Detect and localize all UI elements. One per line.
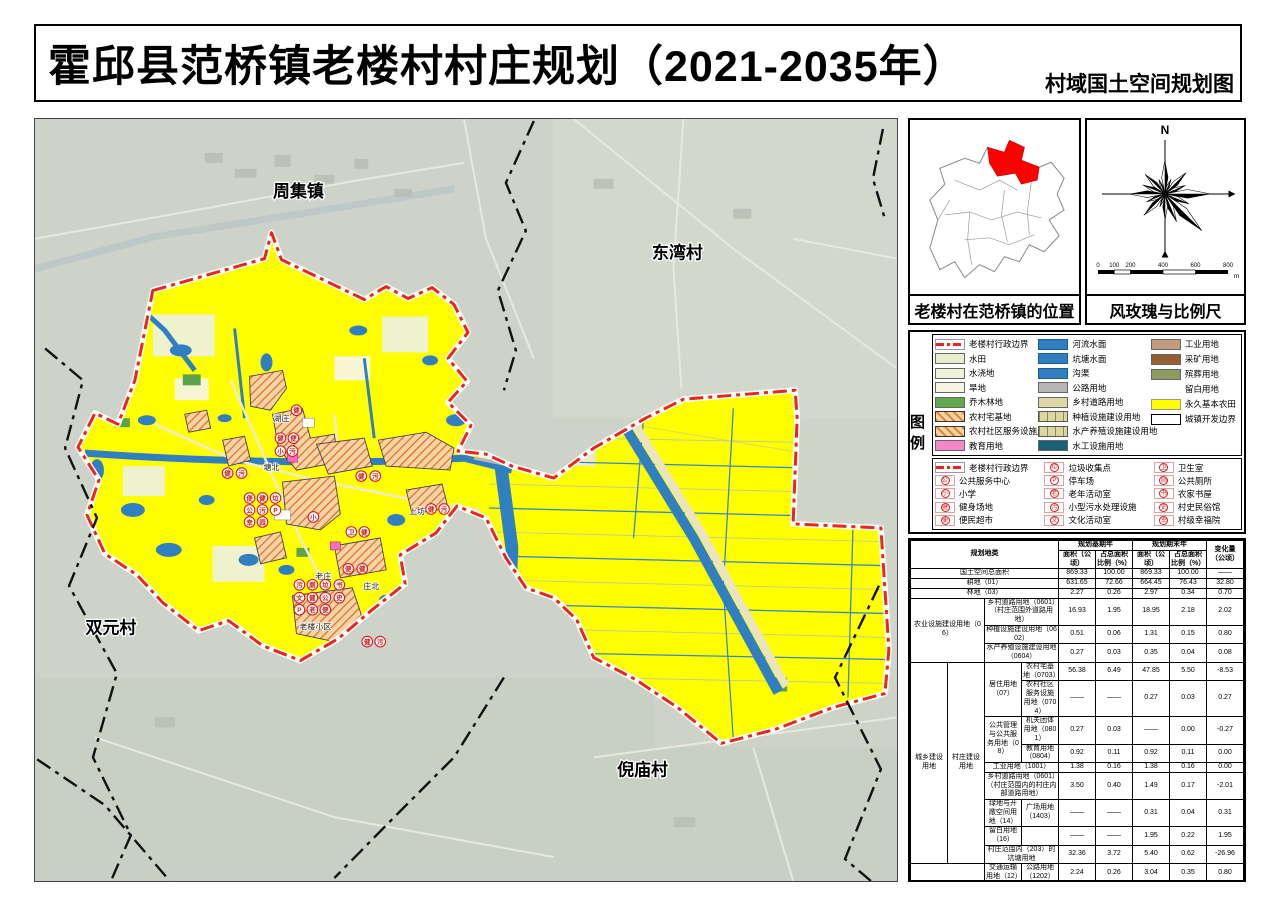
water-swatch (1038, 368, 1068, 379)
header: 霍邱县范桥镇老楼村村庄规划（2021-2035年） 村域国土空间规划图 (34, 24, 1242, 102)
svg-text:书: 书 (336, 580, 343, 589)
legend-item: 水工设施用地 (1038, 440, 1150, 452)
legend-item: 卫卫生室 (1154, 461, 1239, 474)
facility-marker-垃: 垃 (270, 493, 281, 504)
svg-text:卫: 卫 (348, 528, 355, 536)
scale-bar: 0100200400600800 m (1096, 263, 1239, 280)
legend-label: 村级幸福院 (1178, 514, 1221, 526)
facility-marker-健: 健 (222, 468, 233, 479)
legend-label: 坑塘水面 (1072, 353, 1106, 365)
svg-text:健: 健 (309, 593, 316, 602)
facility-marker-健: 健 (426, 504, 437, 515)
facility-marker-小: 小 (308, 512, 319, 523)
legend-label: 采矿用地 (1185, 353, 1219, 365)
svg-text:0: 0 (1096, 263, 1100, 269)
svg-text:污: 污 (296, 580, 303, 589)
table-row: 规划地类规划基期年规划期末年变化量（公顷） (911, 541, 1244, 551)
facility-marker-污: 污 (236, 468, 247, 479)
legend-item: 乡村道路用地 (1038, 396, 1150, 408)
legend-item: 城镇开发边界 (1151, 413, 1239, 425)
svg-text:小: 小 (310, 512, 317, 521)
legend-item: 农村社区服务设施用地 (935, 425, 1038, 437)
legend-item: 便便民超市 (935, 514, 1044, 527)
legend-item: 乔木林地 (935, 396, 1038, 408)
facility-marker-厕: 厕 (307, 579, 318, 590)
aqua-swatch (1038, 426, 1068, 437)
legend-label: 停车场 (1068, 475, 1094, 487)
wind-rose: N 0100200400600800 m (1087, 120, 1244, 298)
table-row: 农业设施建设用地（06）乡村道路用地（0601）（村庄范围外道路用地）16.93… (911, 598, 1244, 625)
legend-label: 教育用地 (969, 440, 1003, 452)
svg-text:小: 小 (277, 447, 284, 456)
svg-text:便: 便 (246, 493, 253, 502)
svg-text:便: 便 (345, 564, 352, 573)
legend-label: 水产养殖设施建设用地 (1072, 425, 1157, 437)
svg-text:健: 健 (361, 527, 368, 536)
point-symbol-卫: 卫 (1154, 462, 1174, 473)
facility-marker-健: 健 (359, 527, 370, 538)
facility-marker-便: 便 (320, 604, 331, 615)
svg-text:100: 100 (1109, 263, 1120, 269)
facility-marker-公: 公 (320, 592, 331, 603)
legend-item: 健健身场地 (935, 501, 1044, 514)
svg-text:400: 400 (1158, 263, 1169, 269)
facility-marker-文: 文 (294, 592, 305, 603)
facility-marker-小: 小 (275, 446, 286, 457)
map-panel: 周集镇东湾村双元村倪庙村 湖庄塘北上坊老庄庄北老楼小区 健健便小污健污健污便健垃… (34, 118, 898, 882)
point-symbol-书: 书 (1154, 488, 1174, 499)
svg-text:健: 健 (359, 564, 366, 573)
water-swatch (1038, 353, 1068, 364)
svg-text:P: P (297, 607, 302, 614)
land-use-table-panel: 规划地类规划基期年规划期末年变化量（公顷）面积（公顷）占总面积比例（%）面积（公… (908, 538, 1246, 882)
facility-marker-污: 污 (257, 505, 268, 516)
community-swatch (935, 426, 965, 437)
legend-item: 公公共服务中心 (935, 474, 1044, 487)
scale-ticks: 0100200400600800 (1096, 263, 1233, 269)
legend-item: 污小型污水处理设施 (1044, 501, 1153, 514)
svg-text:污: 污 (372, 471, 379, 480)
neighbor-label: 周集镇 (273, 181, 324, 201)
legend-label: 小型污水处理设施 (1068, 501, 1136, 513)
svg-text:健: 健 (358, 471, 365, 480)
forest-swatch (935, 397, 965, 408)
legend-label: 农村宅基地 (969, 411, 1012, 423)
point-symbol-健: 健 (935, 502, 955, 513)
svg-text:污: 污 (441, 504, 448, 513)
svg-text:污: 污 (377, 637, 384, 646)
homestead-swatch (935, 411, 965, 422)
facility-marker-幸: 幸 (244, 517, 255, 528)
point-symbol-老: 老 (1044, 488, 1064, 499)
facility-marker-污: 污 (375, 636, 386, 647)
education-patch-2 (330, 542, 340, 550)
facility-marker-垃: 垃 (320, 579, 331, 590)
facility-marker-便: 便 (343, 564, 354, 575)
compass-inset: N 0100200400600800 m 风玫瑰与比例尺 (1085, 118, 1246, 325)
legend-item: 种植设施建设用地 (1038, 411, 1150, 423)
legend-label: 永久基本农田 (1185, 398, 1236, 410)
legend-label: 河流水面 (1072, 338, 1106, 350)
facility-marker-污: 污 (287, 446, 298, 457)
legend-label: 公共服务中心 (959, 475, 1010, 487)
table-row: 林地（03）2.270.262.970.340.70 (911, 588, 1244, 598)
legend-label: 村史民俗馆 (1178, 501, 1221, 513)
compass-caption: 风玫瑰与比例尺 (1087, 294, 1244, 323)
location-inset: 老楼村在范桥镇的位置 (908, 118, 1081, 325)
boundary-swatch (935, 339, 965, 350)
legend-label: 水田 (969, 353, 986, 365)
point-symbol-公: 公 (935, 475, 955, 486)
legend-label: 留白用地 (1185, 383, 1219, 395)
svg-text:园: 园 (259, 517, 266, 526)
ruralroad-swatch (1038, 397, 1068, 408)
table-row: 耕地（01）631.6572.66664.4576.4332.80 (911, 579, 1244, 589)
boundary-swatch (935, 462, 965, 473)
legend-label: 老楼村行政边界 (969, 462, 1029, 474)
legend-item: 史村史民俗馆 (1154, 501, 1239, 514)
legend-label: 卫生室 (1178, 462, 1204, 474)
svg-text:垃: 垃 (322, 580, 329, 589)
facility-marker-便: 便 (244, 493, 255, 504)
legend-label: 老年活动室 (1068, 488, 1111, 500)
svg-text:健: 健 (293, 406, 300, 415)
point-symbol-污: 污 (1044, 502, 1064, 513)
table-row: 区域基础设施用地交通运输用地（12）公路用地（1202）2.240.263.04… (911, 864, 1244, 882)
facility-marker-健: 健 (356, 471, 367, 482)
legend-item: 教育用地 (935, 440, 1038, 452)
point-symbol-垃: 垃 (1044, 462, 1064, 473)
legend-item: 沟渠 (1038, 367, 1150, 379)
legend-label: 水浇地 (969, 367, 995, 379)
legend-label: 种植设施建设用地 (1072, 411, 1140, 423)
neighbor-label: 倪庙村 (617, 759, 668, 779)
map-sheet-title: 村域国土空间规划图 (1045, 68, 1234, 98)
facility-marker-卫: 卫 (346, 527, 357, 538)
scale-unit-label: m (1234, 273, 1239, 280)
svg-text:P: P (273, 507, 278, 514)
page-title: 霍邱县范桥镇老楼村村庄规划（2021-2035年） (48, 32, 967, 94)
facility-marker-P: P (270, 505, 281, 516)
facility-marker-P: P (294, 604, 305, 615)
svg-text:健: 健 (428, 504, 435, 513)
legend-label: 健身场地 (959, 501, 993, 513)
svg-text:污: 污 (259, 505, 266, 514)
legend-panel: 图例 老楼村行政边界水田水浇地旱地乔木林地农村宅基地农村社区服务设施用地教育用地… (908, 330, 1246, 534)
legend-item: 老楼村行政边界 (935, 338, 1038, 350)
legend-item: 厕公共厕所 (1154, 474, 1239, 487)
legend-label: 老楼村行政边界 (969, 338, 1029, 350)
svg-text:健: 健 (277, 434, 284, 443)
legend-item: 永久基本农田 (1151, 398, 1239, 410)
facility-marker-污: 污 (439, 504, 450, 515)
svg-text:便: 便 (322, 605, 329, 614)
legend-label: 沟渠 (1072, 367, 1089, 379)
rose-petals (1129, 160, 1211, 231)
water-swatch (1038, 339, 1068, 350)
legend-label: 农家书屋 (1178, 488, 1212, 500)
legend-item: 水产养殖设施建设用地 (1038, 425, 1150, 437)
facility-marker-书: 书 (334, 579, 345, 590)
legend-point-section: 老楼村行政边界垃垃圾收集点卫卫生室公公共服务中心P停车场厕公共厕所小小学老老年活… (932, 458, 1242, 530)
legend-label: 水工设施用地 (1072, 440, 1123, 452)
education-swatch (935, 440, 965, 451)
north-label: N (1161, 123, 1170, 137)
facility-marker-污: 污 (294, 579, 305, 590)
svg-text:厕: 厕 (309, 580, 316, 589)
svg-text:垃: 垃 (272, 493, 279, 502)
point-symbol-文: 文 (1044, 515, 1064, 526)
irrigated-swatch (935, 368, 965, 379)
location-caption: 老楼村在范桥镇的位置 (910, 294, 1079, 323)
hamlet-label: 老楼小区 (299, 622, 331, 632)
legend-item: 老老年活动室 (1044, 487, 1153, 500)
blank-swatch (1151, 384, 1181, 395)
legend-item: 文文化活动室 (1044, 514, 1153, 527)
neighbor-label: 双元村 (86, 618, 137, 638)
facility-marker-健: 健 (362, 636, 373, 647)
facility-marker-公: 公 (244, 505, 255, 516)
svg-text:200: 200 (1125, 263, 1136, 269)
paddy-swatch (935, 353, 965, 364)
legend-item: 公路用地 (1038, 382, 1150, 394)
facility-marker-老: 老 (307, 604, 318, 615)
svg-text:老: 老 (308, 605, 316, 614)
farmland-swatch (1151, 399, 1181, 410)
hydro-swatch (1038, 440, 1068, 451)
facility-marker-污: 污 (370, 471, 381, 482)
legend-label: 乔木林地 (969, 396, 1003, 408)
legend-label: 垃圾收集点 (1068, 462, 1111, 474)
legend-item: 老楼村行政边界 (935, 461, 1044, 474)
svg-text:健: 健 (364, 637, 371, 646)
legend-item: 水田 (935, 353, 1038, 365)
hamlet-label: 上坊 (409, 506, 425, 516)
svg-text:污: 污 (238, 468, 245, 477)
legend-item: 水浇地 (935, 367, 1038, 379)
svg-text:公: 公 (322, 594, 329, 602)
legend-item: 坑塘水面 (1038, 353, 1150, 365)
table-row: 城乡建设用地村庄建设用地居住用地（07）农村宅基地（0703）56.386.49… (911, 662, 1244, 681)
legend-label: 文化活动室 (1068, 514, 1111, 526)
legend-item: 工业用地 (1151, 338, 1239, 350)
legend-item: P停车场 (1044, 474, 1153, 487)
legend-label: 便民超市 (959, 514, 993, 526)
legend-item: 垃垃圾收集点 (1044, 461, 1153, 474)
svg-text:便: 便 (290, 434, 297, 443)
legend-label: 小学 (959, 488, 976, 500)
legend-area-section: 老楼村行政边界水田水浇地旱地乔木林地农村宅基地农村社区服务设施用地教育用地 河流… (932, 334, 1242, 456)
facility-marker-健: 健 (257, 493, 268, 504)
legend-item: 留白用地 (1151, 383, 1239, 395)
table-row: 国土空间总面积869.33100.00869.33100.00—— (911, 569, 1244, 579)
legend-item: 农村宅基地 (935, 411, 1038, 423)
legend-item: 河流水面 (1038, 338, 1150, 350)
legend-label: 公路用地 (1072, 382, 1106, 394)
white-patch (302, 418, 314, 427)
legend-heading: 图例 (910, 332, 932, 532)
svg-text:600: 600 (1190, 263, 1201, 269)
point-symbol-小: 小 (935, 488, 955, 499)
devboundary-swatch (1151, 414, 1181, 425)
point-symbol-便: 便 (935, 515, 955, 526)
point-symbol-幸: 幸 (1154, 515, 1174, 526)
svg-text:公: 公 (246, 506, 253, 514)
legend-item: 幸村级幸福院 (1154, 514, 1239, 527)
point-symbol-史: 史 (1154, 502, 1174, 513)
legend-item: 采矿用地 (1151, 353, 1239, 365)
hamlet-label: 庄北 (363, 581, 379, 591)
land-use-table: 规划地类规划基期年规划期末年变化量（公顷）面积（公顷）占总面积比例（%）面积（公… (910, 540, 1244, 882)
legend-item: 殡葬用地 (1151, 368, 1239, 380)
mining-swatch (1151, 354, 1181, 365)
funeral-swatch (1151, 369, 1181, 380)
svg-text:污: 污 (289, 447, 296, 456)
town-location-map (910, 120, 1079, 298)
svg-text:史: 史 (336, 593, 343, 602)
neighbor-label: 东湾村 (652, 243, 703, 263)
legend-label: 旱地 (969, 382, 986, 394)
industry-swatch (1151, 339, 1181, 350)
svg-text:800: 800 (1223, 263, 1234, 269)
legend-label: 公共厕所 (1178, 475, 1212, 487)
facility-marker-史: 史 (334, 592, 345, 603)
legend-item: 书农家书屋 (1154, 487, 1239, 500)
legend-item: 旱地 (935, 382, 1038, 394)
hamlet-label: 湖庄 (274, 413, 290, 423)
sidebar: 老楼村在范桥镇的位置 N (908, 118, 1246, 882)
facility-marker-园: 园 (257, 517, 268, 528)
facility-marker-健: 健 (307, 592, 318, 603)
facility-marker-健: 健 (275, 433, 286, 444)
point-symbol-厕: 厕 (1154, 475, 1174, 486)
legend-label: 城镇开发边界 (1185, 413, 1236, 425)
point-symbol-P: P (1044, 475, 1064, 486)
svg-text:健: 健 (224, 468, 231, 477)
legend-item: 小小学 (935, 487, 1044, 500)
legend-label: 殡葬用地 (1185, 368, 1219, 380)
facility-marker-便: 便 (288, 433, 299, 444)
svg-text:文: 文 (295, 593, 303, 602)
village-plan-map: 周集镇东湾村双元村倪庙村 湖庄塘北上坊老庄庄北老楼小区 健健便小污健污健污便健垃… (35, 119, 897, 881)
svg-text:幸: 幸 (246, 517, 253, 526)
road-swatch (1038, 382, 1068, 393)
hamlet-label: 塘北 (264, 462, 280, 472)
dry-swatch (935, 382, 965, 393)
planting-swatch (1038, 411, 1068, 422)
plan-sheet: 霍邱县范桥镇老楼村村庄规划（2021-2035年） 村域国土空间规划图 (0, 0, 1273, 900)
svg-text:健: 健 (259, 493, 266, 502)
facility-marker-健: 健 (357, 564, 368, 575)
legend-label: 工业用地 (1185, 338, 1219, 350)
legend-label: 乡村道路用地 (1072, 396, 1123, 408)
facility-marker-健: 健 (291, 405, 302, 416)
